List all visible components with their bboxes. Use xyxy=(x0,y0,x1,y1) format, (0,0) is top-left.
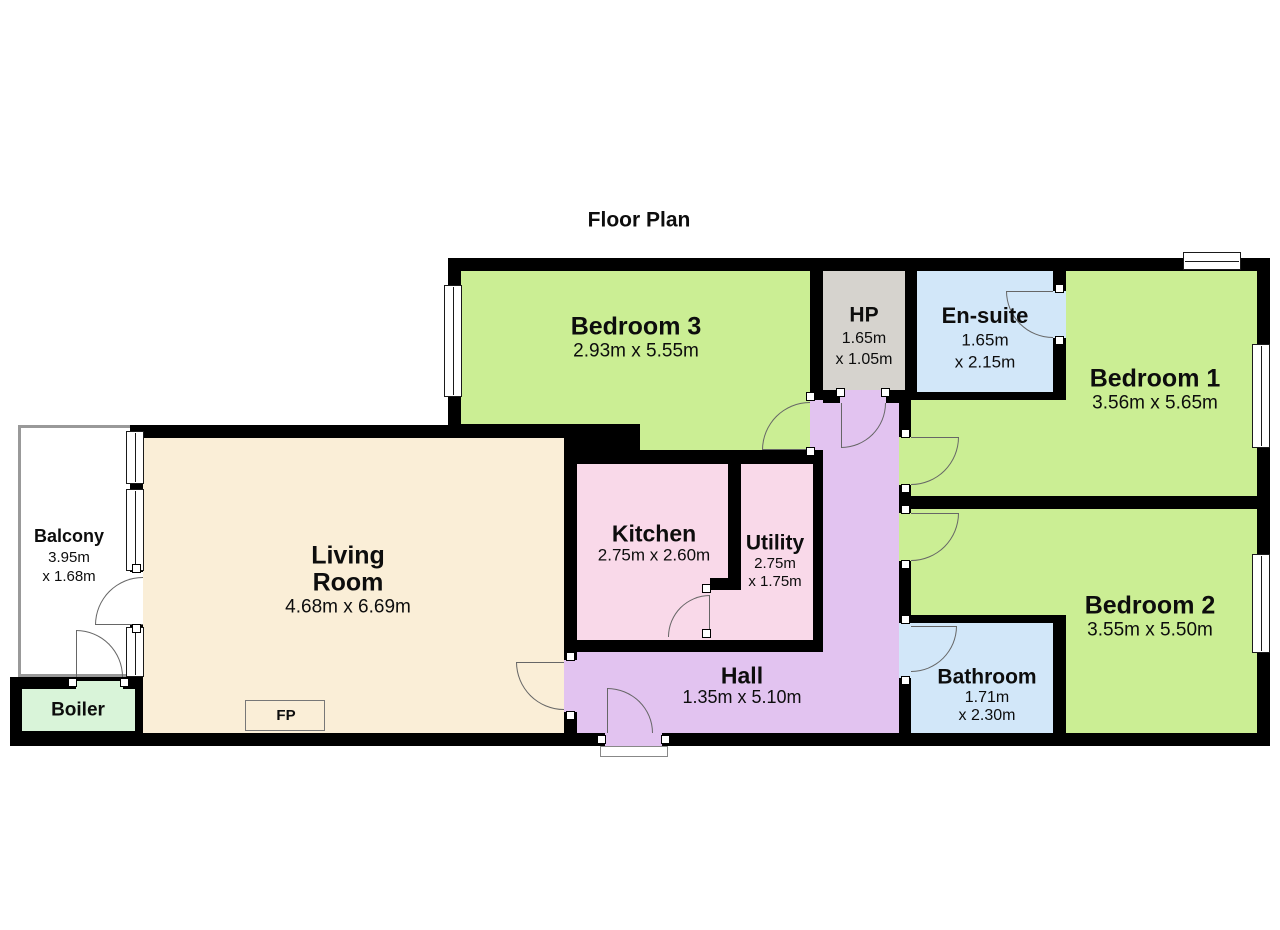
door-jamb xyxy=(901,615,910,624)
room-label-kitchen: Kitchen xyxy=(612,521,696,546)
door-jamb xyxy=(806,447,815,456)
window-bedroom-2 xyxy=(1252,554,1270,653)
front-door-threshold xyxy=(600,746,668,757)
door-jamb xyxy=(68,678,77,687)
door-jamb xyxy=(120,678,129,687)
room-dims-utility-1: 2.75m xyxy=(754,556,796,573)
room-label-hall: Hall xyxy=(721,663,763,688)
door-jamb xyxy=(901,505,910,514)
room-dims-bedroom-3: 2.93m x 5.55m xyxy=(573,342,699,363)
room-dims-utility-2: x 1.75m xyxy=(748,574,801,591)
window-living-2 xyxy=(126,489,144,571)
room-label-bedroom-3: Bedroom 3 xyxy=(571,313,702,341)
room-dims-kitchen: 2.75m x 2.60m xyxy=(598,547,710,566)
door-jamb xyxy=(881,388,890,397)
room-label-bathroom: Bathroom xyxy=(937,665,1036,688)
door-jamb xyxy=(132,564,141,573)
door-jamb xyxy=(806,392,815,401)
door-jamb xyxy=(566,652,575,661)
door-jamb xyxy=(1055,336,1064,345)
page-title: Floor Plan xyxy=(588,208,691,231)
room-dims-balcony-2: x 1.68m xyxy=(42,569,95,586)
door-jamb xyxy=(702,584,711,593)
door-jamb xyxy=(836,388,845,397)
room-label-bedroom-2: Bedroom 2 xyxy=(1085,592,1216,620)
door-opening-bathroom xyxy=(899,623,911,678)
door-opening-ensuite xyxy=(1053,291,1066,338)
door-jamb xyxy=(901,676,910,685)
door-jamb xyxy=(702,629,711,638)
room-label-living-2: Room xyxy=(313,569,384,597)
door-opening-living xyxy=(564,660,577,712)
room-dims-hp-2: x 1.05m xyxy=(836,351,893,369)
door-jamb xyxy=(901,484,910,493)
door-jamb xyxy=(901,429,910,438)
room-dims-bedroom-2: 3.55m x 5.50m xyxy=(1087,621,1213,642)
room-dims-hp-1: 1.65m xyxy=(842,330,886,348)
room-label-balcony: Balcony xyxy=(34,527,104,547)
fireplace-label: FP xyxy=(276,708,295,725)
room-dims-ensuite-1: 1.65m xyxy=(961,332,1008,351)
door-opening-front xyxy=(605,733,662,746)
room-dims-balcony-1: 3.95m xyxy=(48,550,90,567)
door-jamb xyxy=(597,735,606,744)
door-opening-bedroom-3 xyxy=(810,400,823,450)
door-jamb xyxy=(1055,284,1064,293)
door-opening-bedroom-2 xyxy=(899,513,911,561)
room-dims-bathroom-2: x 2.30m xyxy=(959,707,1016,725)
door-opening-boiler xyxy=(76,681,123,690)
room-dims-bedroom-1: 3.56m x 5.65m xyxy=(1092,394,1218,415)
room-label-ensuite: En-suite xyxy=(942,304,1029,328)
room-label-living-1: Living xyxy=(311,542,385,570)
door-opening-hp xyxy=(840,390,886,403)
room-label-bedroom-1: Bedroom 1 xyxy=(1090,365,1221,393)
window-top-right xyxy=(1183,252,1241,270)
wall-kitchen-stub xyxy=(710,578,741,590)
room-dims-hall: 1.35m x 5.10m xyxy=(682,688,801,708)
room-dims-ensuite-2: x 2.15m xyxy=(955,354,1015,373)
window-living-3 xyxy=(126,627,144,677)
floor-plan: Floor Plan xyxy=(0,0,1280,930)
window-bedroom-3 xyxy=(444,285,462,397)
door-jamb xyxy=(661,735,670,744)
window-bedroom-1 xyxy=(1252,344,1270,448)
door-jamb xyxy=(566,711,575,720)
door-jamb xyxy=(901,560,910,569)
room-dims-living: 4.68m x 6.69m xyxy=(285,598,411,619)
window-living-1 xyxy=(126,431,144,484)
room-label-boiler: Boiler xyxy=(51,701,105,722)
door-jamb xyxy=(132,624,141,633)
room-dims-bathroom-1: 1.71m xyxy=(965,689,1009,707)
room-label-utility: Utility xyxy=(746,531,804,554)
door-opening-bedroom-1 xyxy=(899,437,911,485)
room-label-hp: HP xyxy=(849,303,878,326)
